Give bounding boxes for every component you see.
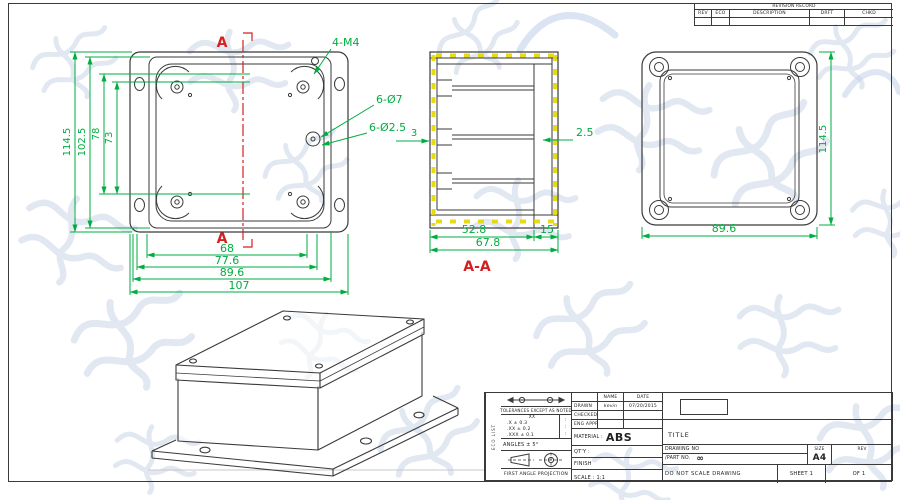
title-label: TITLE xyxy=(668,431,690,439)
tolerance-row-1: .X ± 0.3 xyxy=(505,421,559,426)
revision-empty-cell xyxy=(695,18,712,25)
title-block: ECO LIST TOLERANCES EXCEPT AS NOTED XX xyxy=(484,392,893,481)
tolerance-dot: : xyxy=(560,425,571,430)
revision-col-rev: REV xyxy=(695,10,712,17)
scale-label: SCALE : 1:1 xyxy=(572,470,662,485)
title-block-side-strip: ECO LIST xyxy=(485,393,501,480)
tolerance-row-2: .XX ± 0.2 xyxy=(505,427,559,432)
revision-table-title: REVISION RECORD xyxy=(695,3,893,9)
revision-empty-cell xyxy=(730,18,810,25)
angles-tolerance: ANGLES ± 5° xyxy=(501,439,571,451)
rev-value xyxy=(832,452,892,464)
tolerance-note: TOLERANCES EXCEPT AS NOTED xyxy=(501,407,571,415)
part-no-label: /PART NO. xyxy=(665,456,690,461)
tolerance-dot: : xyxy=(560,418,571,423)
revision-table: REVISION RECORD REV ECO DESCRIPTION DRFT… xyxy=(694,3,893,26)
revision-empty-cell xyxy=(712,18,730,25)
material-value: ABS xyxy=(606,431,632,444)
approval-section: NAME DATE DRAWN kevin 07/20/2015 CHECKED… xyxy=(572,393,663,480)
tolerance-dot: : xyxy=(560,432,571,437)
do-not-scale-note: DO NOT SCALE DRAWING xyxy=(663,465,778,483)
revision-empty-cell xyxy=(845,18,893,25)
size-label: SIZE xyxy=(808,445,831,452)
projection-symbols xyxy=(501,451,571,469)
tolerance-section: TOLERANCES EXCEPT AS NOTED XX .X ± 0.3 .… xyxy=(501,393,572,480)
rev-label: REV xyxy=(832,445,892,452)
drawing-no-label: DRAWING NO xyxy=(663,445,807,454)
of-info: OF 1 xyxy=(826,465,892,483)
projection-label: FIRST ANGLE PROJECTION xyxy=(501,469,571,480)
size-value: A4 xyxy=(808,452,831,464)
revision-col-chkd: CHKD xyxy=(845,10,893,17)
finish-label: FINISH xyxy=(572,458,662,470)
eng-appr-label: ENG APPR xyxy=(572,420,598,428)
logo-box xyxy=(680,399,728,415)
drawn-name: kevin xyxy=(598,402,624,410)
drawn-date: 07/20/2015 xyxy=(624,402,662,410)
target-symbol xyxy=(538,452,564,468)
dimension-style-icon xyxy=(501,393,571,407)
sheet-info: SHEET 1 xyxy=(778,465,826,483)
checked-label: CHECKED xyxy=(572,411,598,419)
revision-col-eco: ECO xyxy=(712,10,730,17)
tolerance-table: XX .X ± 0.3 .XX ± 0.2 .XXX ± 0.1 : : : xyxy=(501,415,571,439)
qty-label: QT'Y : xyxy=(572,446,662,458)
material-label: MATERIAL : xyxy=(574,435,603,440)
part-no-value: ∞ xyxy=(696,454,704,464)
tolerance-header: XX xyxy=(505,415,559,420)
title-section: TITLE DRAWING NO /PART NO. ∞ SIZE A4 REV xyxy=(663,393,892,480)
date-header: DATE xyxy=(624,393,662,401)
drawn-label: DRAWN xyxy=(572,402,598,410)
revision-col-drft: DRFT xyxy=(810,10,845,17)
name-header: NAME xyxy=(598,393,624,401)
revision-col-description: DESCRIPTION xyxy=(730,10,810,17)
cone-symbol xyxy=(508,453,534,467)
tolerance-row-3: .XXX ± 0.1 xyxy=(505,433,559,438)
drawing-sheet: A A 114.5 1 xyxy=(0,0,900,500)
revision-empty-cell xyxy=(810,18,845,25)
